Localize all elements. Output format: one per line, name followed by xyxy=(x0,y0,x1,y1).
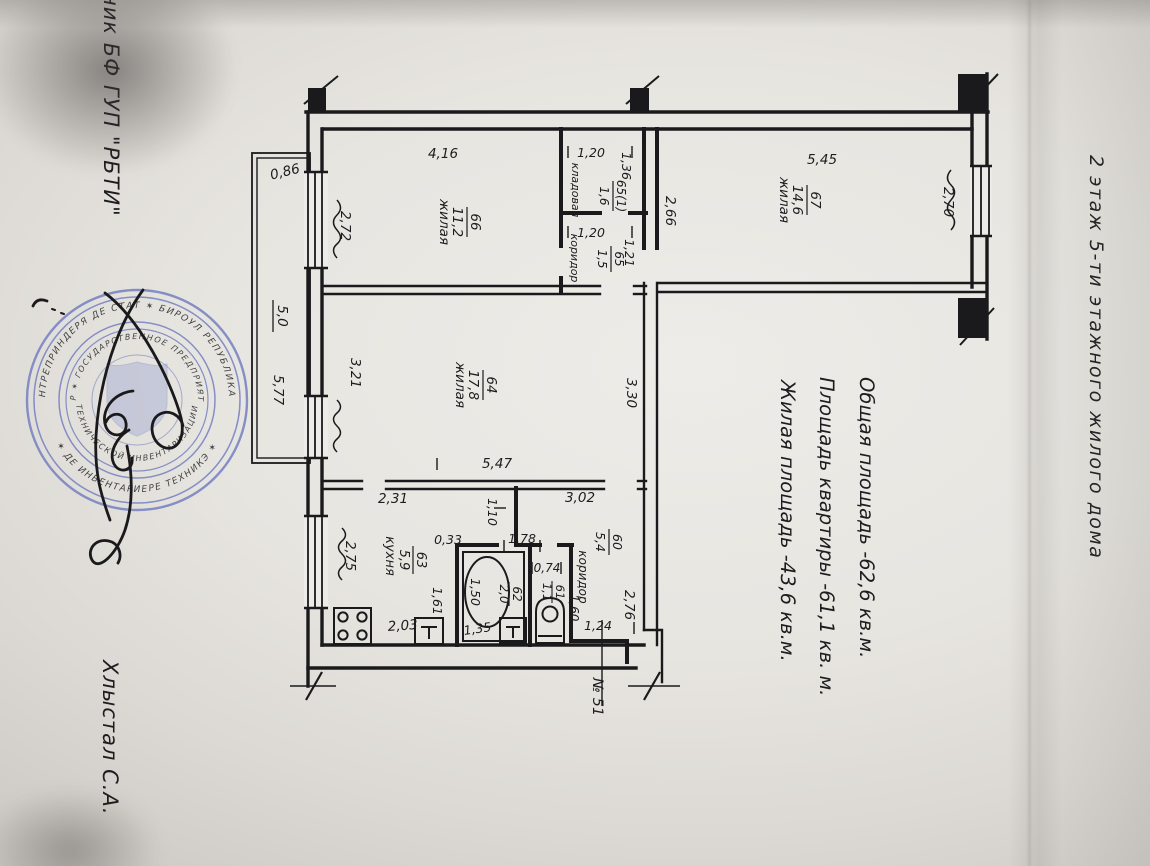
floor-plan-drawing: 66 11,2 жилая 67 14,6 жилая 64 17,8 жила… xyxy=(0,0,1150,866)
room-65-1-label: 65(1) 1,6 xyxy=(597,180,628,212)
room-66-number: 66 xyxy=(467,213,483,230)
dim-balcony-width: 0,86 xyxy=(269,161,302,184)
window-room66 xyxy=(304,172,328,268)
room-67-number: 67 xyxy=(807,191,823,209)
dim-storage-right: 1,36 xyxy=(619,152,634,180)
dim-bath-len: 1,50 xyxy=(468,578,483,606)
dim-kitchen-top: 2,31 xyxy=(378,491,408,507)
dim-balcony-outer: 5,77 xyxy=(270,375,286,405)
dim-hall60-top: 3,02 xyxy=(565,490,595,506)
dim-hall60-mid: 1,60 xyxy=(567,595,581,622)
dim-bath-top: 1,78 xyxy=(508,531,536,546)
dim-r66-left: 2,72 xyxy=(337,211,353,241)
floor-title-text: 2 этаж 5-ти этажного жилого дома xyxy=(1085,155,1107,559)
room-67-label: 67 14,6 xyxy=(789,185,823,215)
summary-flat-area: Площадь квартиры -61,1 кв. м. xyxy=(815,377,838,696)
apartment-number: № 51 xyxy=(589,677,605,716)
dim-kitchen-notch: 0,33 xyxy=(434,532,462,547)
dim-r67-top: 5,45 xyxy=(807,152,837,168)
room-65-area: 1,5 xyxy=(595,249,609,268)
room-65-type: коридор xyxy=(568,234,581,283)
room-61-number: 61 xyxy=(553,585,567,600)
room-65-1-type: кладовая xyxy=(569,163,582,218)
dim-r67-left: 2,66 xyxy=(662,196,678,226)
left-official-text: ник БФ ГУП "РБТИ" xyxy=(99,0,123,217)
stamp-outer-bottom-text: ✶ ДЕ ИНВЕНТАРИЕРЕ ТЕХНИКЭ ✶ xyxy=(54,441,221,495)
window-kitchen xyxy=(304,516,328,608)
room-63-number: 63 xyxy=(413,552,428,569)
dim-r67-right: 2,70 xyxy=(940,187,956,217)
dimensions-vertical: 2,72 1,36 1,21 2,66 2,70 5,0 5,77 3,21 3… xyxy=(270,152,956,716)
dim-hall60-right: 2,76 xyxy=(621,590,637,620)
exterior-walls-thin xyxy=(636,283,987,682)
room-65-label: 65 1,5 xyxy=(595,246,626,272)
dim-balcony-inner: 5,0 xyxy=(274,305,290,326)
room-61-area: 1,1 xyxy=(540,583,554,601)
dim-r64-bottom: 5,47 xyxy=(482,456,512,472)
room-65-1-number: 65(1) xyxy=(614,180,628,212)
stove-icon xyxy=(334,608,371,644)
window-symbols xyxy=(304,166,992,608)
dim-hall65-top: 1,20 xyxy=(577,225,605,240)
washbasin-icon xyxy=(500,618,526,643)
window-room64 xyxy=(304,396,328,458)
room-60-number: 60 xyxy=(610,534,625,550)
room-63-label: 63 5,9 xyxy=(396,546,428,574)
dim-wc-top: 0,74 xyxy=(534,561,561,575)
room-66-label: 66 11,2 xyxy=(449,207,483,237)
room-64-label: 64 17,8 xyxy=(465,370,499,400)
window-room67 xyxy=(970,166,992,236)
summary-total-area: Общая площадь -62,6 кв.м. xyxy=(855,377,878,658)
room-62-number: 62 xyxy=(510,586,524,601)
dim-lobby: 1,10 xyxy=(485,498,500,526)
dim-hall65-right: 1,21 xyxy=(622,239,637,267)
room-65-1-area: 1,6 xyxy=(597,186,611,205)
dim-r64-right: 3,30 xyxy=(623,378,639,408)
toilet-icon xyxy=(536,598,564,643)
room-63-area: 5,9 xyxy=(396,550,411,571)
room-66-type: жилая xyxy=(436,198,452,245)
room-60-area: 5,4 xyxy=(593,532,608,552)
dim-hall60-bottom: 1,24 xyxy=(584,618,612,633)
room-62-area: 2,0 xyxy=(497,584,511,603)
scanned-floor-plan-document: 66 11,2 жилая 67 14,6 жилая 64 17,8 жила… xyxy=(0,0,1150,866)
room-64-number: 64 xyxy=(483,376,499,393)
room-63-type: кухня xyxy=(382,536,397,576)
room-62-label: 62 2,0 xyxy=(497,582,524,606)
room-67-type: жилая xyxy=(776,176,792,223)
signature xyxy=(33,290,183,564)
dim-r64-left: 3,21 xyxy=(347,358,363,388)
dim-kitchen-right: 1,61 xyxy=(430,587,445,615)
room-61-label: 61 1,1 xyxy=(540,581,567,603)
dim-r66-top: 4,16 xyxy=(428,146,458,162)
dim-storage-top: 1,20 xyxy=(577,145,605,160)
exterior-walls xyxy=(306,74,988,686)
dim-kitchen-left: 2,75 xyxy=(342,541,358,571)
inspector-name-text: Хлыстал С.А. xyxy=(98,659,122,816)
summary-living-area: Жилая площадь -43,6 кв.м. xyxy=(776,379,799,662)
room-64-type: жилая xyxy=(452,361,468,408)
kitchen-sink-icon xyxy=(415,618,443,644)
dim-bath-width: 1,35 xyxy=(463,619,493,638)
room-60-label: 60 5,4 xyxy=(593,529,625,555)
dim-kitchen-bottom: 2,03 xyxy=(387,617,418,635)
